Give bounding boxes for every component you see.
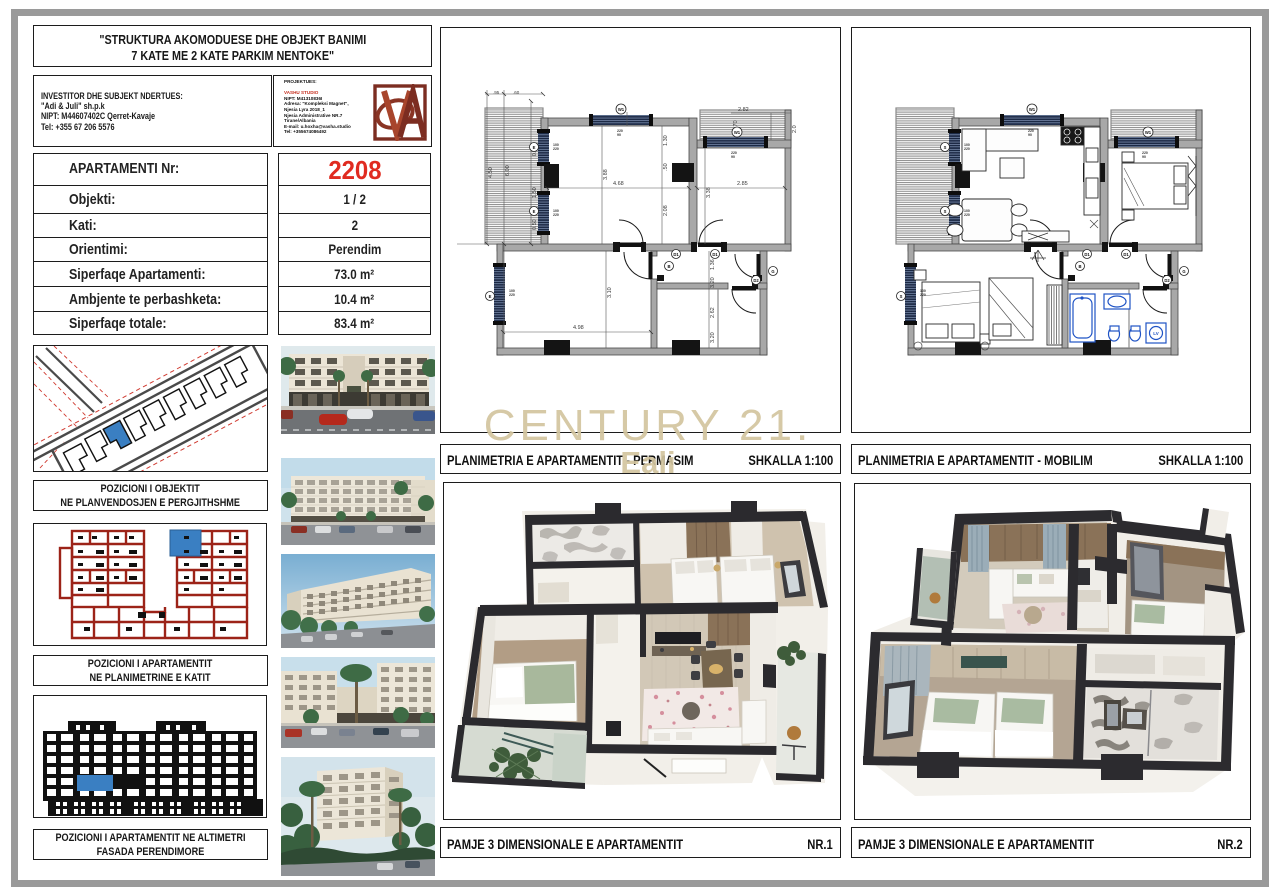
svg-text:3.38: 3.38 bbox=[706, 187, 712, 198]
svg-text:4.68: 4.68 bbox=[613, 181, 624, 187]
svg-text:2.0: 2.0 bbox=[792, 125, 798, 133]
svg-text:W1: W1 bbox=[618, 107, 625, 112]
svg-text:2.62: 2.62 bbox=[710, 307, 716, 318]
svg-text:3.20: 3.20 bbox=[710, 332, 716, 343]
svg-text:S: S bbox=[944, 209, 947, 214]
svg-text:220: 220 bbox=[920, 293, 926, 297]
svg-text:W1: W1 bbox=[734, 130, 741, 135]
svg-text:D1: D1 bbox=[712, 252, 718, 257]
svg-text:E: E bbox=[533, 145, 536, 150]
svg-text:W1: W1 bbox=[1029, 107, 1036, 112]
svg-text:4.50: 4.50 bbox=[488, 167, 494, 178]
svg-text:S: S bbox=[944, 145, 947, 150]
svg-text:6.00: 6.00 bbox=[505, 165, 511, 176]
svg-text:E: E bbox=[533, 209, 536, 214]
svg-text:E: E bbox=[489, 294, 492, 299]
svg-text:B: B bbox=[667, 264, 670, 269]
svg-text:220: 220 bbox=[553, 213, 559, 217]
svg-text:1.50: 1.50 bbox=[532, 187, 538, 198]
svg-text:D2: D2 bbox=[1164, 278, 1170, 283]
svg-text:2.08: 2.08 bbox=[663, 205, 669, 216]
svg-text:B: B bbox=[1078, 264, 1081, 269]
svg-text:2.85: 2.85 bbox=[737, 181, 748, 187]
svg-text:.95: .95 bbox=[493, 90, 500, 95]
svg-text:G: G bbox=[1182, 269, 1185, 274]
svg-text:90: 90 bbox=[617, 133, 621, 137]
svg-text:D1: D1 bbox=[1084, 252, 1090, 257]
svg-text:D1: D1 bbox=[673, 252, 679, 257]
svg-text:.50: .50 bbox=[663, 163, 669, 171]
svg-text:1.30: 1.30 bbox=[663, 135, 669, 146]
svg-text:220: 220 bbox=[964, 213, 970, 217]
svg-text:90: 90 bbox=[1142, 155, 1146, 159]
svg-text:LV: LV bbox=[1153, 331, 1158, 336]
svg-text:D1: D1 bbox=[1123, 252, 1129, 257]
svg-text:D2: D2 bbox=[753, 278, 759, 283]
svg-text:220: 220 bbox=[509, 293, 515, 297]
svg-text:90: 90 bbox=[1028, 133, 1032, 137]
svg-text:0.50: 0.50 bbox=[532, 219, 538, 230]
svg-text:3.10: 3.10 bbox=[607, 287, 613, 298]
svg-text:S: S bbox=[900, 294, 903, 299]
svg-text:90: 90 bbox=[731, 155, 735, 159]
svg-text:3.88: 3.88 bbox=[603, 169, 609, 180]
svg-text:220: 220 bbox=[964, 147, 970, 151]
svg-text:.60: .60 bbox=[513, 90, 520, 95]
svg-text:1.36: 1.36 bbox=[710, 259, 716, 270]
svg-text:3.20: 3.20 bbox=[710, 277, 716, 288]
svg-text:4.98: 4.98 bbox=[573, 325, 584, 331]
svg-text:2.82: 2.82 bbox=[738, 107, 749, 113]
svg-text:220: 220 bbox=[553, 147, 559, 151]
svg-text:W1: W1 bbox=[1145, 130, 1152, 135]
svg-text:G: G bbox=[771, 269, 774, 274]
